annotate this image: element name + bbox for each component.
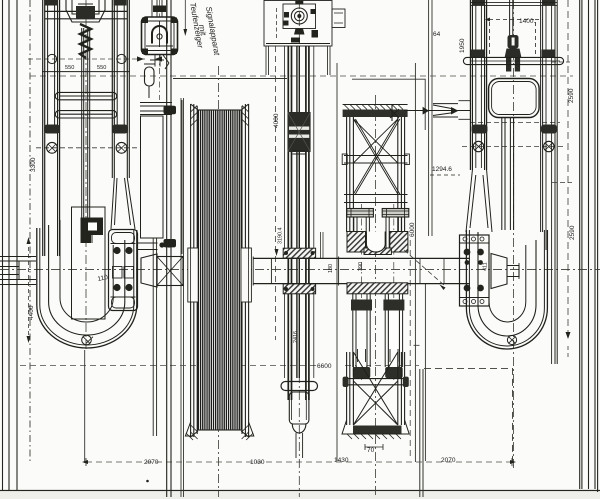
svg-text:3190.4: 3190.4 bbox=[278, 228, 284, 245]
svg-text:6000: 6000 bbox=[409, 222, 416, 237]
svg-text:180: 180 bbox=[328, 264, 334, 273]
svg-text:3300: 3300 bbox=[30, 157, 37, 172]
svg-text:1430: 1430 bbox=[334, 457, 349, 464]
svg-text:64: 64 bbox=[433, 31, 441, 38]
svg-text:1950: 1950 bbox=[459, 38, 466, 53]
svg-text:2070: 2070 bbox=[441, 457, 456, 464]
svg-text:4400: 4400 bbox=[28, 305, 35, 320]
svg-text:390: 390 bbox=[358, 262, 364, 271]
svg-text:2070: 2070 bbox=[144, 459, 159, 466]
svg-text:550: 550 bbox=[65, 65, 74, 71]
svg-text:2590: 2590 bbox=[569, 225, 576, 240]
svg-text:1030: 1030 bbox=[250, 459, 265, 466]
svg-text:2590: 2590 bbox=[568, 88, 575, 103]
svg-text:6600: 6600 bbox=[317, 363, 332, 370]
svg-text:70: 70 bbox=[367, 447, 375, 454]
svg-text:1294.6: 1294.6 bbox=[432, 166, 452, 173]
svg-text:2416: 2416 bbox=[293, 331, 299, 343]
svg-text:4000: 4000 bbox=[273, 113, 280, 128]
svg-text:411: 411 bbox=[483, 262, 489, 271]
svg-text:550: 550 bbox=[97, 65, 106, 71]
svg-text:1400.: 1400. bbox=[519, 18, 535, 25]
